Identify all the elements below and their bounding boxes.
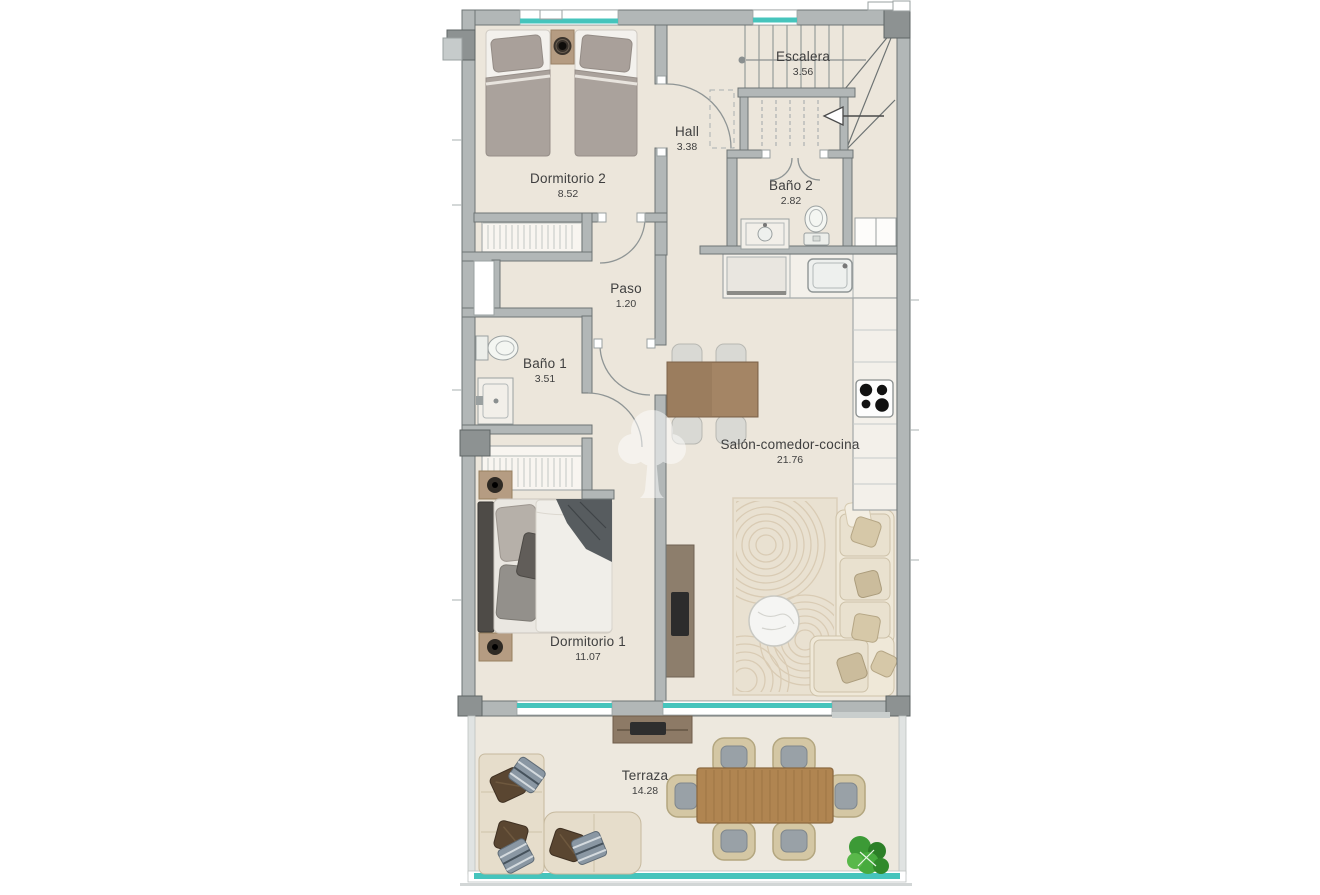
floor-plan-graphics	[0, 0, 1320, 895]
bano1-fixtures	[476, 336, 518, 424]
nightstand-dormitorio2	[551, 30, 574, 64]
nightstand-dorm1-bottom	[479, 633, 512, 661]
cooktop	[856, 380, 893, 417]
kitchen-counter-north	[723, 254, 897, 298]
coffee-table-marble	[749, 596, 799, 646]
nightstand-dorm1-top	[479, 471, 512, 499]
wall-shaft	[474, 261, 494, 315]
twin-bed-left	[486, 30, 550, 156]
double-bed-dormitorio1	[478, 499, 612, 633]
kitchen-sink	[808, 259, 852, 292]
twin-bed-right	[575, 30, 637, 156]
kitchen-cabinets-side	[855, 218, 896, 247]
kitchen-counter-east	[853, 298, 897, 510]
floor-plan-image: Dormitorio 2 8.52 Escalera 3.56 Hall 3.3…	[0, 0, 1320, 895]
tv-unit-salon	[666, 545, 694, 677]
tv-unit-terrace	[613, 716, 692, 743]
